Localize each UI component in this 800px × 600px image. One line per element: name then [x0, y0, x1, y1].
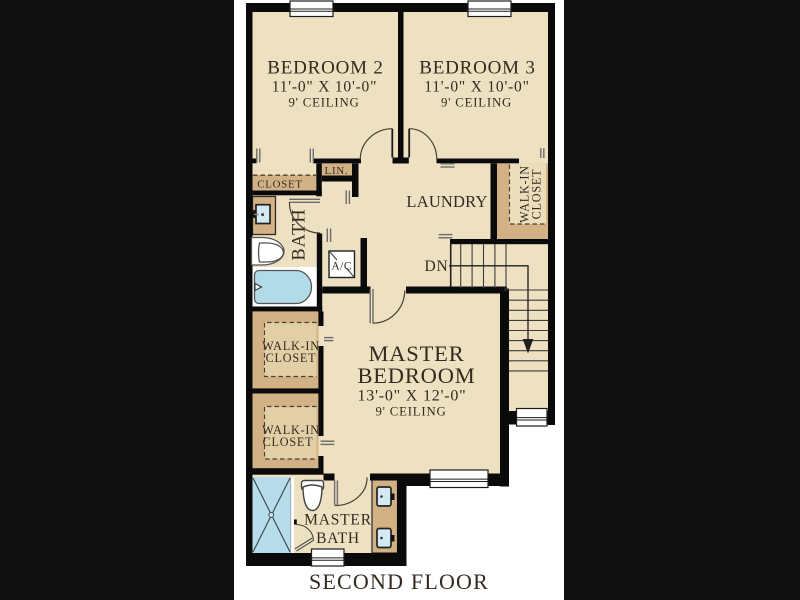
svg-text:SECOND FLOOR: SECOND FLOOR: [309, 569, 489, 594]
svg-text:MASTER: MASTER: [304, 512, 372, 529]
svg-text:DN: DN: [425, 258, 449, 275]
svg-text:A/C: A/C: [331, 261, 352, 273]
svg-text:9' CEILING: 9' CEILING: [441, 96, 512, 110]
svg-text:13'-0" X 12'-0": 13'-0" X 12'-0": [357, 388, 466, 405]
svg-text:11'-0" X 10'-0": 11'-0" X 10'-0": [424, 79, 529, 96]
svg-text:LAUNDRY: LAUNDRY: [406, 192, 487, 211]
svg-text:LIN.: LIN.: [325, 165, 349, 177]
svg-text:9' CEILING: 9' CEILING: [288, 96, 359, 110]
svg-text:CLOSET: CLOSET: [530, 169, 544, 220]
svg-text:BEDROOM: BEDROOM: [357, 363, 475, 388]
svg-text:CLOSET: CLOSET: [263, 435, 314, 449]
svg-text:BATH: BATH: [316, 530, 360, 547]
svg-text:CLOSET: CLOSET: [266, 351, 317, 365]
svg-text:BEDROOM 2: BEDROOM 2: [267, 58, 383, 79]
svg-text:9' CEILING: 9' CEILING: [375, 405, 446, 419]
svg-text:11'-0" X 10'-0": 11'-0" X 10'-0": [272, 79, 377, 96]
svg-text:BATH: BATH: [290, 208, 310, 260]
svg-text:CLOSET: CLOSET: [257, 179, 303, 191]
svg-text:BEDROOM 3: BEDROOM 3: [419, 58, 535, 79]
